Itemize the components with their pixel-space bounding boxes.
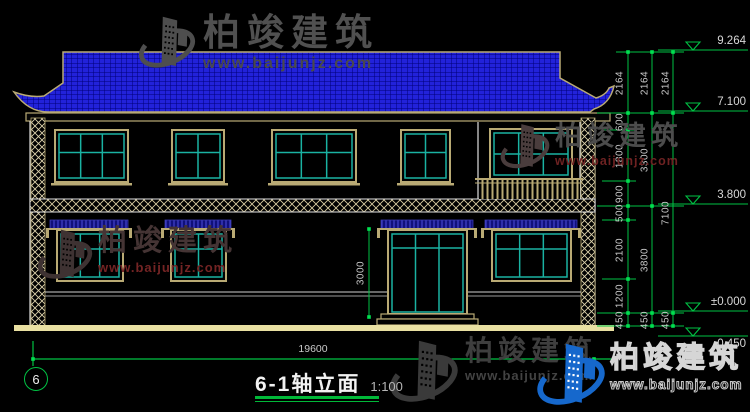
roof (14, 52, 614, 112)
window-sill (397, 183, 454, 186)
elevation-marker-triangle (686, 196, 700, 204)
window-sill (268, 183, 360, 186)
axis-bubble: 6 (24, 367, 48, 391)
dim-tick (650, 111, 654, 115)
axis-number: 6 (32, 372, 39, 387)
door-step (381, 314, 474, 319)
left-corner-pilaster (31, 118, 45, 326)
dim-tick (650, 50, 654, 54)
elevation-marker-triangle (686, 303, 700, 311)
elevation-marker-triangle (686, 328, 700, 336)
awning-bracket (232, 230, 235, 238)
awning-lip (377, 228, 477, 230)
floor-band (30, 199, 595, 212)
dim-tick (626, 50, 630, 54)
door-step (377, 319, 478, 325)
elevation-drawing (0, 0, 750, 412)
dim-tick (626, 128, 630, 132)
right-corner-pilaster (581, 118, 595, 326)
dim-tick (671, 324, 675, 328)
window-frame (492, 230, 571, 281)
title-block: 6-1轴立面1:100 (255, 368, 403, 398)
dim-tick (626, 111, 630, 115)
awning-lip (481, 228, 581, 230)
awning-bracket (46, 230, 49, 238)
window-frame (57, 230, 123, 281)
elevation-marker-triangle (686, 42, 700, 50)
awning-lip (161, 228, 235, 230)
window-sill (168, 183, 228, 186)
dim-tick (367, 315, 371, 319)
drawing-title: 6-1轴立面 (255, 373, 360, 396)
awning-bracket (578, 230, 581, 238)
ground-line (14, 325, 614, 331)
window-awning (50, 220, 128, 229)
window-frame (55, 130, 128, 182)
window-awning (485, 220, 577, 229)
dim-tick (650, 204, 654, 208)
awning-lip (46, 228, 132, 230)
elevation-marker-triangle (686, 103, 700, 111)
dim-tick (626, 218, 630, 222)
dim-tick (592, 357, 596, 361)
cad-elevation-screenshot: 19600 3000 21646001800900500210012004502… (0, 0, 750, 412)
eave-fascia (26, 113, 610, 121)
dim-tick (31, 357, 35, 361)
title-underline-thick (255, 396, 379, 399)
balcony-railing (479, 179, 580, 199)
awning-bracket (161, 230, 164, 238)
awning-bracket (481, 230, 484, 238)
dim-tick (626, 324, 630, 328)
window-sill (51, 183, 132, 186)
awning-bracket (377, 230, 380, 238)
drawing-scale: 1:100 (370, 379, 403, 394)
dim-tick (671, 311, 675, 315)
window-frame (272, 130, 356, 182)
dim-tick (626, 311, 630, 315)
title-underline-thin (255, 401, 379, 402)
dim-tick (650, 311, 654, 315)
awning-bracket (129, 230, 132, 238)
dim-tick (671, 111, 675, 115)
window-awning (165, 220, 231, 229)
dim-tick (671, 50, 675, 54)
dim-tick (367, 227, 371, 231)
dim-tick (626, 204, 630, 208)
dim-tick (626, 179, 630, 183)
dim-tick (650, 324, 654, 328)
entry-door-frame (388, 230, 467, 314)
window-awning (381, 220, 473, 229)
dim-tick (626, 277, 630, 281)
awning-bracket (474, 230, 477, 238)
